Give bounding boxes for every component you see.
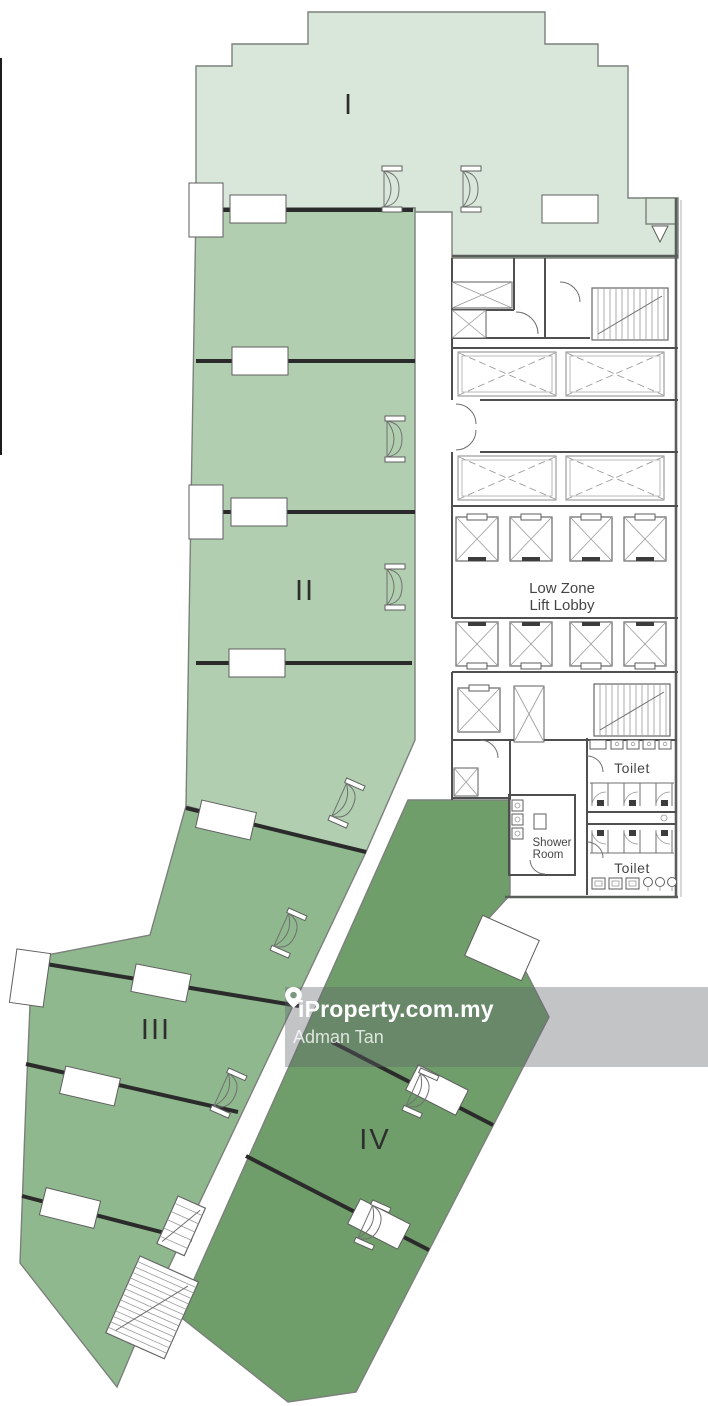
left-edge-artifact	[0, 58, 2, 455]
shower-room-label-line2: Room	[533, 849, 564, 861]
service-lift	[458, 685, 500, 732]
lift-lobby-label-line1: Low Zone	[529, 580, 595, 597]
shower-room-label-line1: Shower	[533, 837, 572, 849]
watermark-agent: Adman Tan	[293, 1027, 708, 1048]
toilet-upper-label: Toilet	[614, 760, 650, 776]
zone-4-label: IV	[359, 1124, 390, 1156]
floor-plan-page: I II III IV Low Zone Lift Lobby Toilet T…	[0, 0, 708, 1406]
fire-stair-top	[592, 288, 668, 340]
ahu-shaft	[566, 456, 664, 500]
ahu-shaft	[458, 352, 556, 396]
zone-3-label: III	[141, 1014, 171, 1046]
balcony-ledge	[646, 198, 676, 224]
service-core	[452, 198, 681, 897]
watermark-bar: iProperty.com.my Adman Tan	[285, 987, 708, 1067]
lift-lobby-label-line2: Lift Lobby	[529, 597, 595, 614]
watermark-brand: iProperty.com.my	[298, 996, 494, 1023]
lift-bank-upper	[456, 514, 666, 561]
shower-room	[509, 795, 575, 875]
zone-2-label: II	[295, 575, 315, 607]
toilet-lower-label: Toilet	[614, 860, 650, 876]
lift-bank-lower	[456, 622, 666, 669]
fire-stair-mid	[594, 684, 670, 736]
zone-1-label: I	[344, 89, 354, 121]
ahu-shaft	[458, 456, 556, 500]
floor-plan-drawing: I II III IV Low Zone Lift Lobby Toilet T…	[0, 0, 708, 1406]
ahu-shaft	[566, 352, 664, 396]
